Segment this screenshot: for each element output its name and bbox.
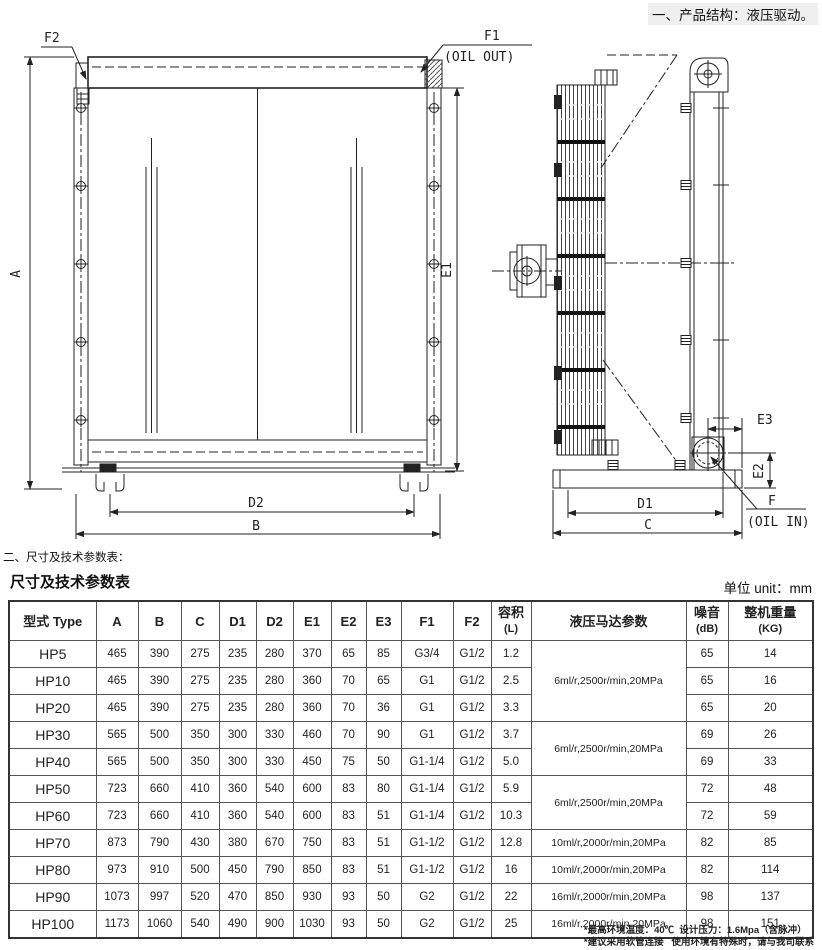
cell-value: 410: [181, 803, 219, 830]
cell-value: G1/2: [453, 911, 491, 939]
cell-value: 70: [331, 668, 366, 695]
cell-value: 490: [219, 911, 256, 939]
cell-noise: 69: [686, 722, 728, 749]
cell-value: 450: [293, 749, 331, 776]
cell-value: 470: [219, 884, 256, 911]
cell-value: 75: [331, 749, 366, 776]
cell-value: 235: [219, 668, 256, 695]
cell-value: 280: [256, 695, 293, 722]
cell-value: 750: [293, 830, 331, 857]
cell-value: 565: [96, 749, 138, 776]
cell-value: 790: [256, 857, 293, 884]
table-row: HP104653902752352803607065G1G1/22.56516: [9, 668, 813, 695]
cell-weight: 114: [728, 857, 813, 884]
cell-weight: 33: [728, 749, 813, 776]
cell-value: 70: [331, 695, 366, 722]
cell-value: 65: [331, 641, 366, 668]
table-row: HP809739105004507908508351G1-1/2G1/21610…: [9, 857, 813, 884]
col-header-sub: (KG): [758, 623, 782, 635]
cell-noise: 65: [686, 641, 728, 668]
cell-value: 65: [366, 668, 401, 695]
cell-value: 520: [181, 884, 219, 911]
label-dim-a: A: [9, 270, 24, 278]
cell-value: G1-1/2: [401, 857, 453, 884]
cell-noise: 72: [686, 803, 728, 830]
cell-model: HP100: [9, 911, 96, 939]
cell-value: 235: [219, 641, 256, 668]
cell-motor: 6ml/r,2500r/min,20MPa: [531, 722, 686, 776]
cell-weight: 59: [728, 803, 813, 830]
cell-value: 360: [293, 668, 331, 695]
cell-value: 70: [331, 722, 366, 749]
params-thead: 型式 TypeABCD1D2E1E2E3F1F2容积(L)液压马达参数噪音(dB…: [9, 601, 813, 641]
cell-value: G1/2: [453, 857, 491, 884]
cell-value: G1/2: [453, 776, 491, 803]
cell-value: 2.5: [491, 668, 531, 695]
cell-value: 500: [181, 857, 219, 884]
front-view: [24, 45, 532, 539]
table-row: HP9010739975204708509309350G2G1/22216ml/…: [9, 884, 813, 911]
cell-value: 565: [96, 722, 138, 749]
cell-value: 16: [491, 857, 531, 884]
cell-value: 380: [219, 830, 256, 857]
cell-value: 83: [331, 830, 366, 857]
cell-value: G3/4: [401, 641, 453, 668]
cell-value: 430: [181, 830, 219, 857]
hydraulic-motor: [492, 245, 562, 297]
dim-e1: [441, 88, 464, 471]
col-header-5: D2: [256, 601, 293, 641]
cell-weight: 26: [728, 722, 813, 749]
table-row: HP607236604103605406008351G1-1/4G1/210.3…: [9, 803, 813, 830]
cell-value: 85: [366, 641, 401, 668]
label-dim-e1: E1: [440, 262, 455, 278]
cell-value: 360: [219, 803, 256, 830]
cell-value: 540: [181, 911, 219, 939]
cell-weight: 16: [728, 668, 813, 695]
cell-value: 540: [256, 776, 293, 803]
cell-value: G1-1/4: [401, 803, 453, 830]
cell-value: 83: [331, 803, 366, 830]
cell-value: G1/2: [453, 803, 491, 830]
table-row: HP708737904303806707508351G1-1/2G1/212.8…: [9, 830, 813, 857]
cell-value: G1: [401, 668, 453, 695]
cell-weight: 14: [728, 641, 813, 668]
cell-value: 873: [96, 830, 138, 857]
table-row: HP507236604103605406008380G1-1/4G1/25.96…: [9, 776, 813, 803]
col-header-7: E2: [331, 601, 366, 641]
dim-a: [24, 57, 74, 489]
cell-value: 5.9: [491, 776, 531, 803]
cell-value: 360: [293, 695, 331, 722]
cell-model: HP60: [9, 803, 96, 830]
cell-value: 51: [366, 830, 401, 857]
cell-value: 93: [331, 884, 366, 911]
cell-motor: 6ml/r,2500r/min,20MPa: [531, 641, 686, 722]
cell-value: G1/2: [453, 749, 491, 776]
cell-value: 465: [96, 641, 138, 668]
cell-motor: 10ml/r,2000r/min,20MPa: [531, 830, 686, 857]
cell-value: 90: [366, 722, 401, 749]
cell-value: 50: [366, 884, 401, 911]
cell-value: 910: [138, 857, 181, 884]
cell-value: 900: [256, 911, 293, 939]
oil-in-port: [690, 435, 726, 471]
cell-value: 540: [256, 803, 293, 830]
cell-value: G1/2: [453, 884, 491, 911]
cell-value: 12.8: [491, 830, 531, 857]
cell-value: 850: [256, 884, 293, 911]
label-dim-d2: D2: [248, 496, 264, 511]
cell-value: 360: [219, 776, 256, 803]
cell-noise: 65: [686, 695, 728, 722]
label-f2: F2: [44, 31, 60, 46]
cell-value: 930: [293, 884, 331, 911]
cell-value: 10.3: [491, 803, 531, 830]
table-row: HP405655003503003304507550G1-1/4G1/25.06…: [9, 749, 813, 776]
cell-value: 500: [138, 722, 181, 749]
cell-model: HP10: [9, 668, 96, 695]
cell-value: G1/2: [453, 641, 491, 668]
spec-table: 型式 TypeABCD1D2E1E2E3F1F2容积(L)液压马达参数噪音(dB…: [8, 600, 814, 939]
col-header-0: 型式 Type: [9, 601, 96, 641]
cell-value: 1060: [138, 911, 181, 939]
cell-value: 350: [181, 749, 219, 776]
cell-value: 390: [138, 641, 181, 668]
cell-value: 3.3: [491, 695, 531, 722]
label-oil-in: (OIL IN): [747, 515, 810, 530]
cell-value: 500: [138, 749, 181, 776]
cell-value: 80: [366, 776, 401, 803]
cell-value: 973: [96, 857, 138, 884]
cell-noise: 69: [686, 749, 728, 776]
cell-value: 390: [138, 668, 181, 695]
col-header-13: 噪音(dB): [686, 601, 728, 641]
cell-value: G1: [401, 722, 453, 749]
cell-value: 670: [256, 830, 293, 857]
cell-value: 410: [181, 776, 219, 803]
door-slats: [146, 138, 362, 433]
cell-value: 22: [491, 884, 531, 911]
cell-value: 50: [366, 749, 401, 776]
col-header-9: F1: [401, 601, 453, 641]
cell-value: 1.2: [491, 641, 531, 668]
label-dim-b: B: [252, 519, 260, 534]
cell-value: 600: [293, 803, 331, 830]
cell-value: 997: [138, 884, 181, 911]
cell-model: HP80: [9, 857, 96, 884]
col-header-1: A: [96, 601, 138, 641]
cell-value: 465: [96, 695, 138, 722]
cell-noise: 65: [686, 668, 728, 695]
footnote-2: *建议采用软管连接 使用环境有特殊时，请与我司联系: [584, 937, 814, 948]
cell-value: 83: [331, 857, 366, 884]
cell-value: 280: [256, 668, 293, 695]
cell-model: HP5: [9, 641, 96, 668]
col-header-3: C: [181, 601, 219, 641]
cell-value: G2: [401, 911, 453, 939]
cell-value: 330: [256, 749, 293, 776]
cell-value: 51: [366, 857, 401, 884]
cell-value: 93: [331, 911, 366, 939]
cell-value: G1-1/2: [401, 830, 453, 857]
cell-value: 3.7: [491, 722, 531, 749]
col-header-10: F2: [453, 601, 491, 641]
cell-value: G1/2: [453, 722, 491, 749]
cell-value: G1/2: [453, 695, 491, 722]
label-oil-out: (OIL OUT): [444, 50, 514, 65]
table-row: HP204653902752352803607036G1G1/23.36520: [9, 695, 813, 722]
cell-noise: 82: [686, 857, 728, 884]
cell-weight: 137: [728, 884, 813, 911]
label-dim-d1: D1: [637, 497, 653, 512]
cell-value: 350: [181, 722, 219, 749]
label-f1: F1: [484, 29, 500, 44]
label-dim-e3: E3: [757, 413, 773, 428]
label-dim-e2: E2: [752, 463, 767, 479]
cell-value: G2: [401, 884, 453, 911]
cell-value: 300: [219, 749, 256, 776]
cell-value: 723: [96, 776, 138, 803]
lifting-bracket: [690, 58, 728, 92]
cell-motor: 16ml/r,2000r/min,20MPa: [531, 884, 686, 911]
cell-value: G1-1/4: [401, 776, 453, 803]
cell-value: 25: [491, 911, 531, 939]
footnotes: *最高环境温度：40℃ 设计压力：1.6Mpa（含脉冲） *建议采用软管连接 使…: [584, 925, 814, 948]
col-header-sub: (dB): [696, 623, 718, 635]
cell-value: 723: [96, 803, 138, 830]
cell-value: 50: [366, 911, 401, 939]
table-title: 尺寸及技术参数表: [10, 571, 130, 592]
cell-value: 330: [256, 722, 293, 749]
cell-weight: 85: [728, 830, 813, 857]
section-heading: 二、尺寸及技术参数表：: [3, 549, 130, 565]
cell-model: HP30: [9, 722, 96, 749]
col-header-2: B: [138, 601, 181, 641]
col-header-14: 整机重量(KG): [728, 601, 813, 641]
col-header-4: D1: [219, 601, 256, 641]
col-header-12: 液压马达参数: [531, 601, 686, 641]
cell-motor: 6ml/r,2500r/min,20MPa: [531, 776, 686, 830]
label-f: F: [768, 494, 776, 509]
cell-weight: 48: [728, 776, 813, 803]
datasheet-page: { "page": { "top_note": "一、产品结构：液压驱动。", …: [0, 0, 822, 950]
table-row: HP305655003503003304607090G1G1/23.76ml/r…: [9, 722, 813, 749]
cell-value: 275: [181, 695, 219, 722]
cell-value: 660: [138, 776, 181, 803]
unit-label: 单位 unit：mm: [723, 577, 812, 597]
cell-value: 450: [219, 857, 256, 884]
col-header-11: 容积(L): [491, 601, 531, 641]
cell-value: 300: [219, 722, 256, 749]
cell-value: 660: [138, 803, 181, 830]
cell-value: 1173: [96, 911, 138, 939]
cell-value: 83: [331, 776, 366, 803]
col-header-8: E3: [366, 601, 401, 641]
cell-model: HP70: [9, 830, 96, 857]
col-header-6: E1: [293, 601, 331, 641]
footnote-1: *最高环境温度：40℃ 设计压力：1.6Mpa（含脉冲）: [584, 925, 807, 936]
cell-value: G1/2: [453, 830, 491, 857]
cell-value: 36: [366, 695, 401, 722]
cell-value: 280: [256, 641, 293, 668]
cell-value: 5.0: [491, 749, 531, 776]
header-row: 型式 TypeABCD1D2E1E2E3F1F2容积(L)液压马达参数噪音(dB…: [9, 601, 813, 641]
cell-model: HP40: [9, 749, 96, 776]
cell-value: 1030: [293, 911, 331, 939]
cell-value: G1: [401, 695, 453, 722]
cell-noise: 98: [686, 884, 728, 911]
params-tbody: HP54653902752352803706585G3/4G1/21.26ml/…: [9, 641, 813, 939]
cell-value: 600: [293, 776, 331, 803]
cell-value: 370: [293, 641, 331, 668]
cell-value: 235: [219, 695, 256, 722]
cell-noise: 82: [686, 830, 728, 857]
cell-model: HP90: [9, 884, 96, 911]
cell-noise: 72: [686, 776, 728, 803]
cell-value: 51: [366, 803, 401, 830]
cell-model: HP20: [9, 695, 96, 722]
cell-value: 275: [181, 668, 219, 695]
cell-motor: 10ml/r,2000r/min,20MPa: [531, 857, 686, 884]
cell-value: G1/2: [453, 668, 491, 695]
technical-drawing: F2 F1 (OIL OUT) A E1 D2 B: [0, 0, 822, 548]
cell-value: 460: [293, 722, 331, 749]
cell-value: 465: [96, 668, 138, 695]
cell-value: 850: [293, 857, 331, 884]
cell-value: 275: [181, 641, 219, 668]
cell-value: 390: [138, 695, 181, 722]
table-row: HP54653902752352803706585G3/4G1/21.26ml/…: [9, 641, 813, 668]
col-header-sub: (L): [504, 623, 518, 635]
cell-weight: 20: [728, 695, 813, 722]
cell-model: HP50: [9, 776, 96, 803]
cell-value: 790: [138, 830, 181, 857]
label-dim-c: C: [644, 518, 652, 533]
cell-value: G1-1/4: [401, 749, 453, 776]
cell-value: 1073: [96, 884, 138, 911]
